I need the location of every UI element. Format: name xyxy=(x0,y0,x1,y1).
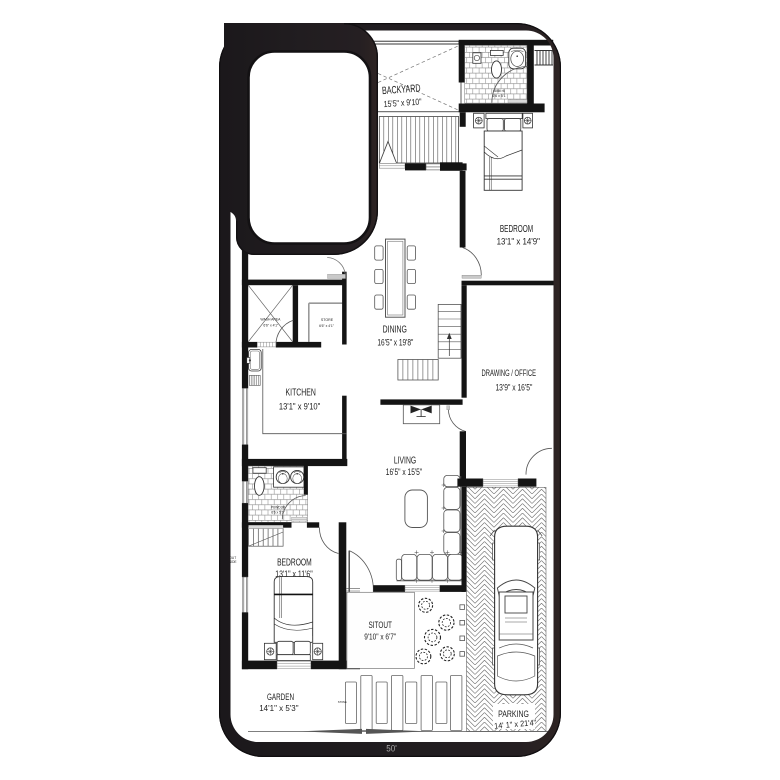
svg-text:BEDROOM: BEDROOM xyxy=(500,224,533,235)
svg-text:9'10" x 6'7": 9'10" x 6'7" xyxy=(364,632,396,642)
svg-text:GARDEN: GARDEN xyxy=(267,692,294,703)
svg-text:ST0NE: ST0NE xyxy=(338,700,347,704)
svg-text:16'5" x 15'5": 16'5" x 15'5" xyxy=(386,467,422,477)
svg-text:DINING: DINING xyxy=(383,325,407,336)
svg-text:16'5" x 19'8": 16'5" x 19'8" xyxy=(377,337,413,347)
svg-text:50': 50' xyxy=(386,744,397,755)
svg-text:DRAWING / OFFICE: DRAWING / OFFICE xyxy=(482,368,537,379)
svg-text:STORE: STORE xyxy=(321,318,334,322)
svg-text:13'1" x 9'10": 13'1" x 9'10" xyxy=(279,402,320,412)
svg-text:6'6 x 5'1: 6'6 x 5'1 xyxy=(492,94,505,98)
svg-text:P6WD3R: P6WD3R xyxy=(271,506,286,510)
svg-text:LIVING: LIVING xyxy=(394,455,416,466)
svg-text:WASH AREA: WASH AREA xyxy=(260,318,281,322)
svg-text:6'6" x 4'1": 6'6" x 4'1" xyxy=(263,324,279,328)
svg-text:t6il6t r6: t6il6t r6 xyxy=(493,89,505,93)
svg-text:14'1" x 5'3": 14'1" x 5'3" xyxy=(259,703,298,713)
svg-text:SITOUT: SITOUT xyxy=(369,620,392,631)
svg-text:PARKING: PARKING xyxy=(498,709,529,719)
svg-text:KITCHEN: KITCHEN xyxy=(286,387,316,398)
svg-text:BEDROOM: BEDROOM xyxy=(277,557,312,568)
svg-text:13'1" x 14'9": 13'1" x 14'9" xyxy=(497,237,540,247)
svg-text:13'9" x 16'5": 13'9" x 16'5" xyxy=(495,382,532,392)
svg-text:6'6" x 4'1": 6'6" x 4'1" xyxy=(319,324,335,328)
